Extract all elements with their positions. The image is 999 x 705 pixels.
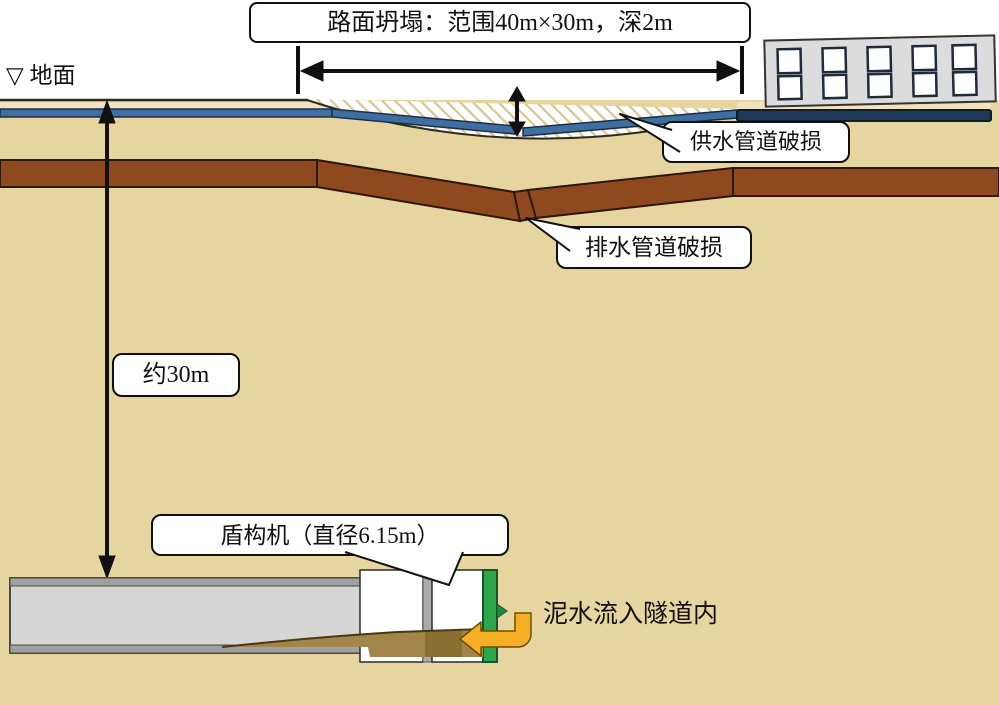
collapse-width-arrow [298,46,742,94]
shield-machine-label: 盾构机（直径6.15m） [151,514,509,556]
building-icon [764,35,995,106]
drain-pipe-right [733,168,999,196]
mud-dark-patch [425,630,462,657]
mud-inflow-label: 泥水流入隧道内 [543,602,718,627]
pavement-band-right [737,110,991,121]
ground-surface-label: ▽ 地面 [6,64,75,87]
collapse-extent-label: 路面坍塌：范围40m×30m，深2m [249,2,751,43]
drain-pipe-damage-label: 排水管道破损 [556,226,752,269]
depth-label: 约30m [112,353,240,397]
drain-pipe-left [0,160,317,187]
water-pipe-left [0,109,333,117]
water-pipe-damage-label: 供水管道破损 [662,121,850,163]
collapse-diagram: 路面坍塌：范围40m×30m，深2m ▽ 地面 供水管道破损 排水管道破损 约3… [0,0,999,705]
cutter-face [483,570,497,662]
tunnel-lining-top [10,578,367,586]
